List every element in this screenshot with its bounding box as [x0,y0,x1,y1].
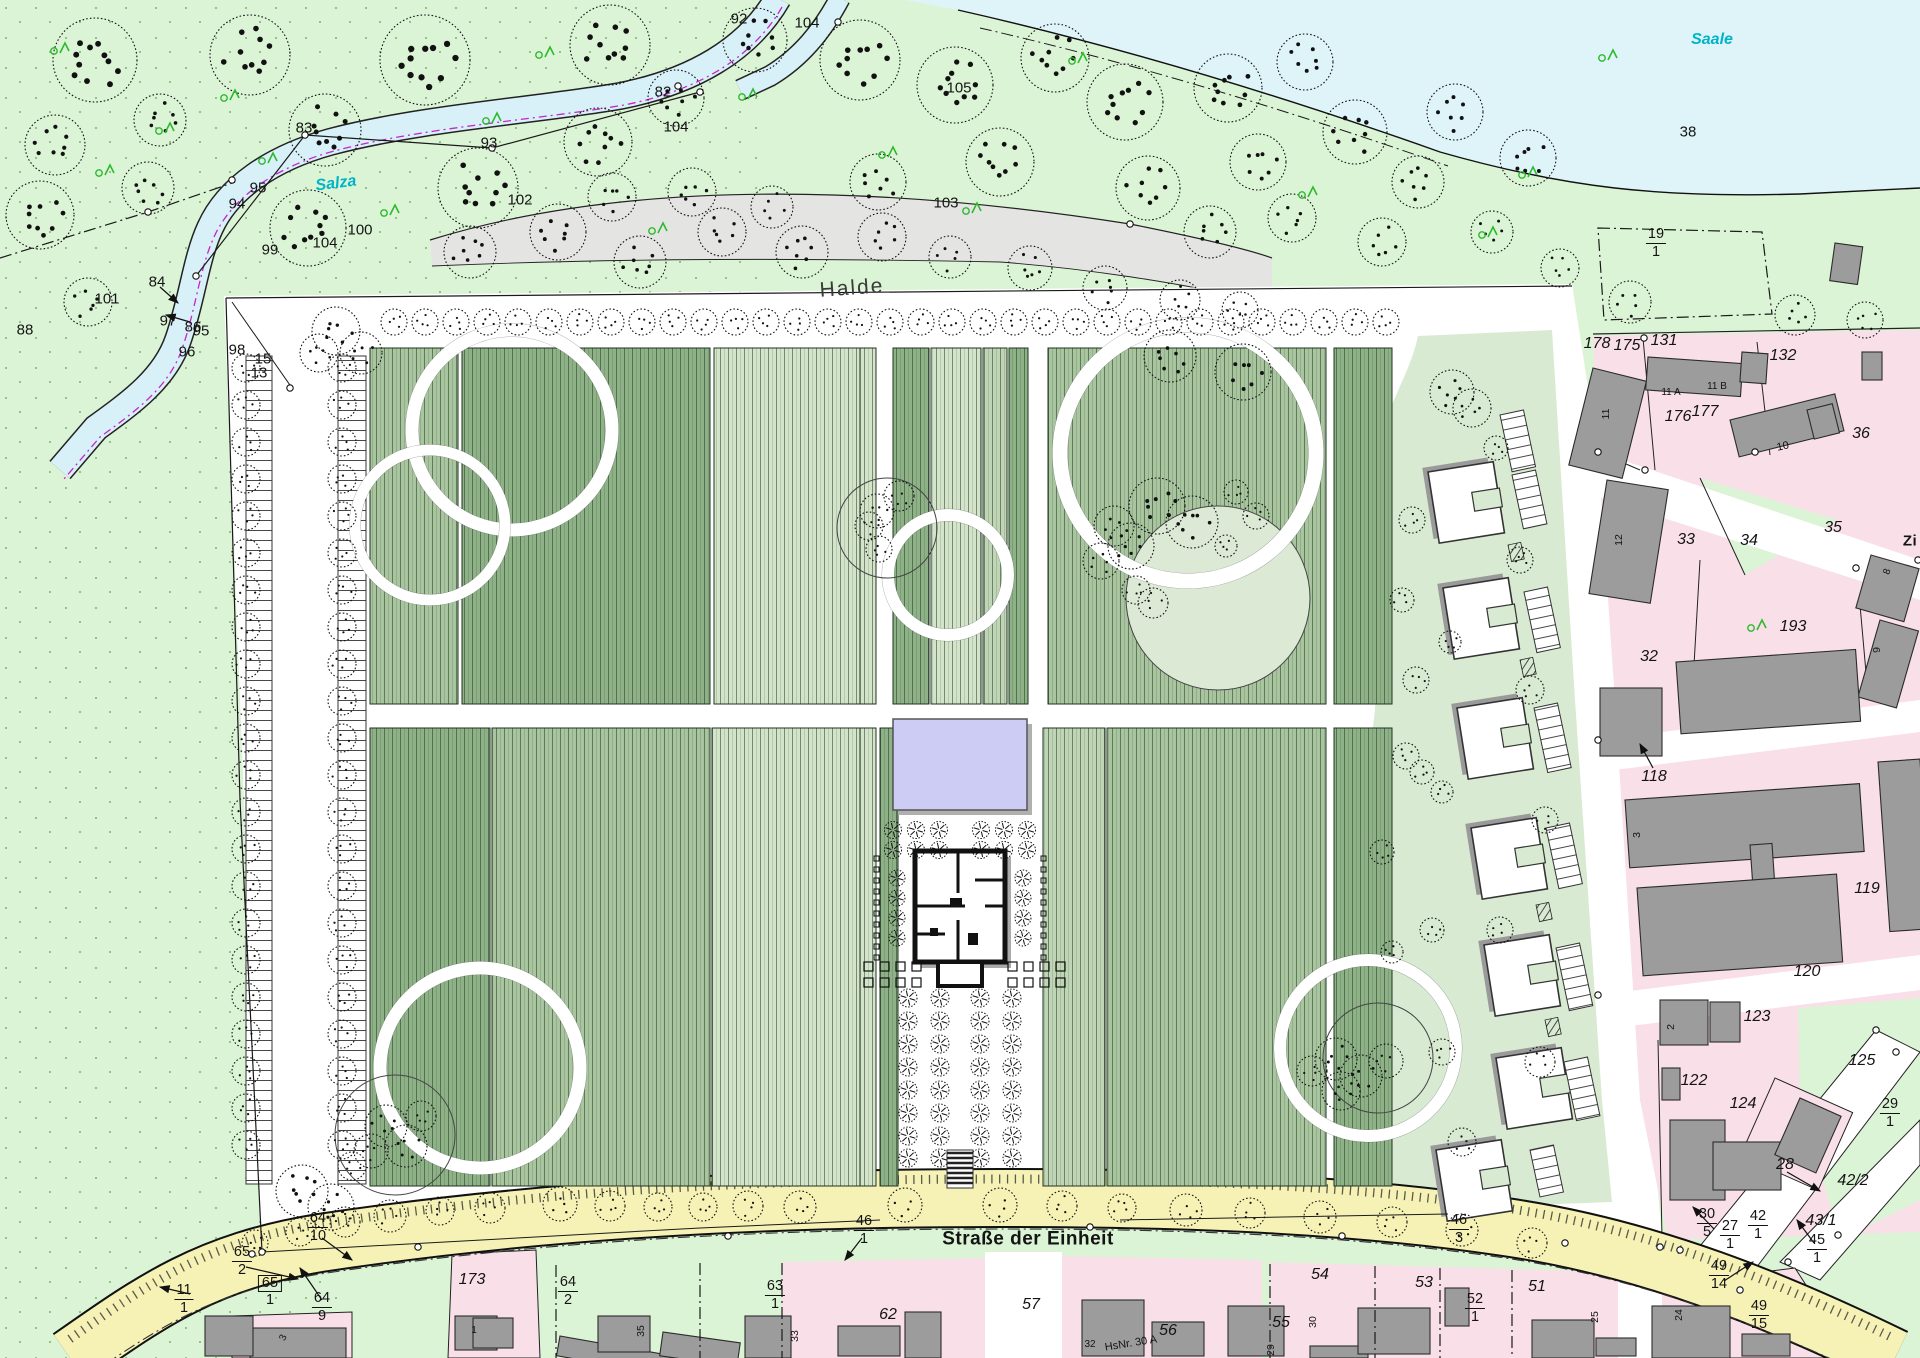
cadastral-site-plan: 8393959410210010499848696981510197958813… [0,0,1920,1358]
map-drawing [0,0,1920,1358]
